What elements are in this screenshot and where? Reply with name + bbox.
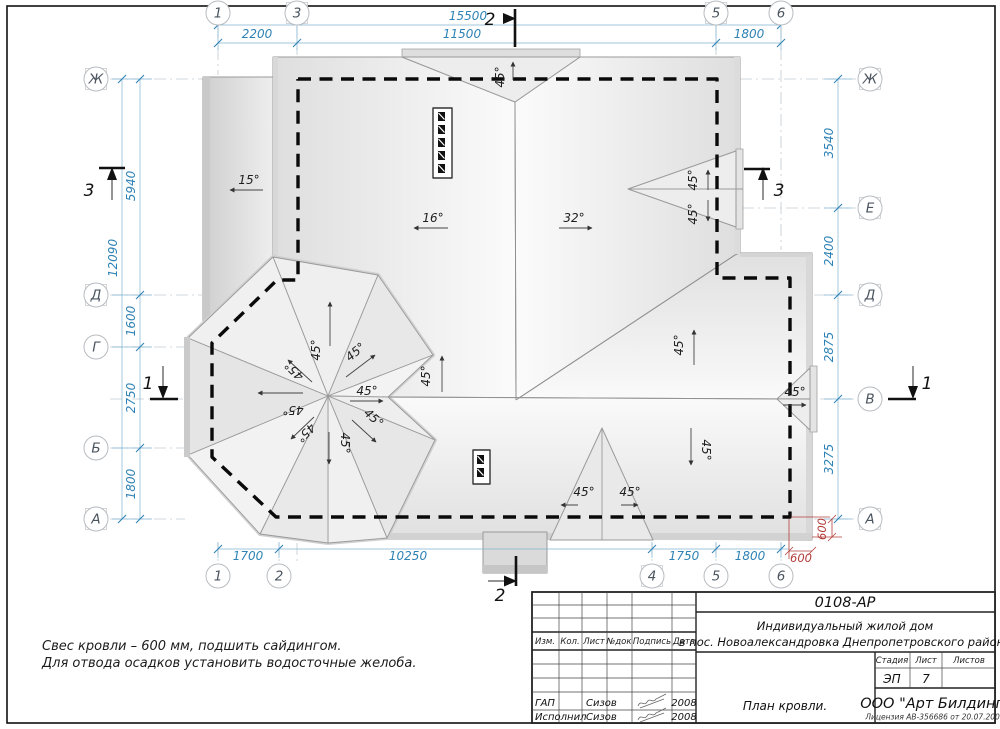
sheet-number: 7: [922, 672, 930, 686]
slope-45: 45°: [282, 403, 303, 417]
dim-overhang-right: 600: [815, 518, 829, 540]
slope-45: 45°: [573, 485, 594, 499]
dim-left-4: 1800: [124, 468, 138, 499]
slope-45: 45°: [338, 432, 352, 453]
row-gap-role: ГАП: [535, 698, 555, 709]
project-title-line1: Индивидуальный жилой дом: [757, 619, 934, 633]
roof-plan: [184, 49, 817, 573]
row-gap-name: Сизов: [586, 698, 617, 709]
axis-left-a: А: [90, 512, 100, 528]
fascia-band: [740, 253, 812, 257]
axis-left-d: Д: [90, 288, 102, 304]
dim-top-left: 2200: [242, 27, 273, 41]
slope-45: 45°: [619, 485, 640, 499]
dim-overhang-bottom: 600: [790, 551, 812, 565]
row-isp-year: 2008: [671, 712, 696, 723]
axis-right-v: В: [865, 392, 874, 408]
slope-45: 45°: [699, 439, 713, 460]
section-1-right: 1: [922, 374, 933, 394]
col-podpis: Подпись: [633, 637, 671, 647]
axis-bottom-4: 4: [648, 569, 657, 585]
turret-west-fascia: [184, 337, 190, 457]
slope-45: 45°: [672, 334, 686, 355]
section-2-bottom: 2: [495, 586, 506, 606]
dim-bottom-3: 1750: [669, 549, 700, 563]
slope-45: 45°: [356, 384, 377, 398]
note-line-2: Для отвода осадков установить водосточны…: [41, 656, 417, 671]
col-izm: Изм.: [535, 637, 555, 647]
fascia-band: [273, 57, 278, 258]
company-name: ООО "Арт Билдинг": [860, 696, 1000, 712]
slope-15: 15°: [238, 173, 259, 187]
axis-bottom-1: 1: [214, 569, 223, 585]
license-line: Лицензия АВ-356686 от 20.07.2007: [864, 713, 1000, 722]
dim-top-overall: 15500: [449, 9, 488, 23]
col-ndok: №док: [605, 637, 632, 647]
axis-bottom-5: 5: [712, 569, 721, 585]
stage-value: ЭП: [882, 672, 900, 686]
slope-45: 45°: [686, 169, 700, 190]
axis-top-6: 6: [777, 6, 786, 22]
col-data: Дата: [672, 637, 695, 647]
slope-45: 45°: [493, 66, 507, 87]
col-list: Лист: [582, 637, 606, 647]
row-isp-name: Сизов: [586, 712, 617, 723]
section-3-right: 3: [774, 181, 785, 201]
sheets-label: Листов: [952, 656, 985, 666]
slope-45: 45°: [686, 203, 700, 224]
dim-bottom-1: 1700: [233, 549, 264, 563]
col-kol: Кол.: [560, 637, 579, 647]
sheet-label: Лист: [914, 656, 938, 666]
slope-16: 16°: [422, 211, 443, 225]
top-dormer-band: [402, 49, 580, 57]
roof-hatch-symbol: [433, 108, 452, 178]
stage-label: Стадия: [876, 656, 909, 666]
dim-left-2: 1600: [124, 305, 138, 336]
roof-hatch-symbol: [473, 450, 490, 484]
dim-right-3: 2875: [822, 332, 836, 363]
dim-bottom-2: 10250: [389, 549, 428, 563]
axis-bottom-2: 2: [275, 569, 284, 585]
row-gap-year: 2008: [671, 698, 696, 709]
section-1-left: 1: [143, 374, 154, 394]
v-dormer-band: [810, 366, 817, 432]
section-3-left: 3: [84, 181, 95, 201]
axis-right-e: Е: [866, 201, 875, 217]
note-line-1: Свес кровли – 600 мм, подшить сайдингом.: [42, 639, 341, 654]
slope-45: 45°: [419, 365, 433, 386]
dim-right-2: 2400: [822, 235, 836, 266]
dim-top-right: 1800: [734, 27, 765, 41]
title-block: 0108-АР Индивидуальный жилой дом в пос. …: [532, 592, 1000, 723]
axis-bottom-6: 6: [777, 569, 786, 585]
dim-left-overall: 12090: [106, 239, 120, 278]
dim-bottom-4: 1800: [735, 549, 766, 563]
dim-left-1: 5940: [124, 170, 138, 201]
section-2-top: 2: [485, 10, 496, 30]
row-isp-role: Исполнил: [535, 712, 587, 723]
dim-top-mid: 11500: [443, 27, 482, 41]
left-wing-fascia: [203, 77, 210, 327]
drawing-sheet: 15° 16° 32° 45° 45° 45° 45° 45° 45° 45° …: [0, 0, 1000, 729]
axis-right-d: Д: [864, 288, 876, 304]
roof-plan-drawing: 15° 16° 32° 45° 45° 45° 45° 45° 45° 45° …: [0, 0, 1000, 729]
axis-right-zh: Ж: [862, 72, 878, 88]
axis-left-zh: Ж: [88, 72, 104, 88]
axis-top-5: 5: [712, 6, 721, 22]
project-title-line2: в пос. Новоалександровка Днепропетровско…: [679, 635, 1000, 649]
slope-45: 45°: [309, 339, 323, 360]
slope-45: 45°: [784, 385, 805, 399]
dim-right-4: 3275: [822, 444, 836, 475]
axis-right-a: А: [864, 512, 874, 528]
axis-left-b: Б: [91, 441, 100, 457]
axis-top-1: 1: [214, 6, 223, 22]
slope-32: 32°: [563, 211, 584, 225]
axis-top-3: 3: [293, 6, 302, 22]
drawing-title: План кровли.: [743, 699, 827, 713]
doc-number: 0108-АР: [815, 595, 876, 611]
dim-right-1: 3540: [822, 127, 836, 158]
dim-left-3: 2750: [124, 382, 138, 413]
